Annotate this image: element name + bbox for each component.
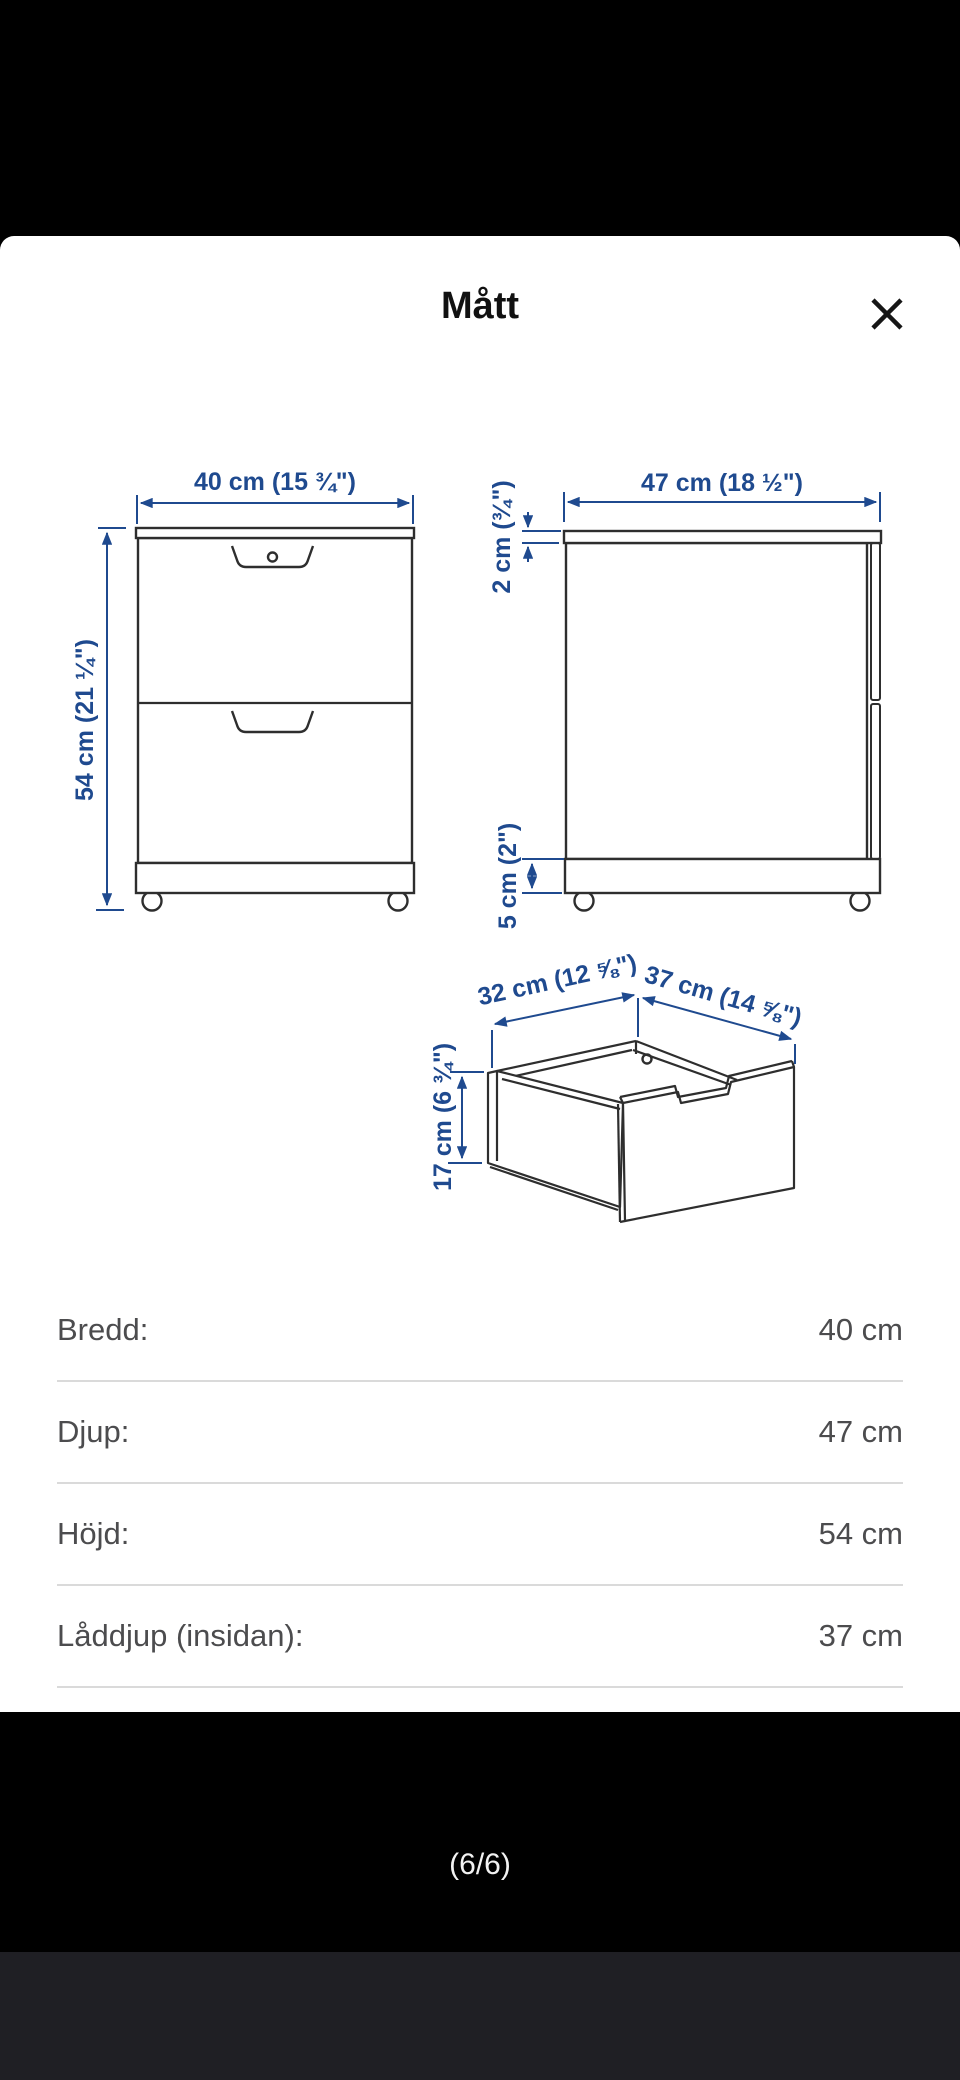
dimension-row-djup: Djup: 47 cm xyxy=(57,1382,903,1484)
side-view-diagram: 47 cm (18 ½") 2 cm (¾") 5 cm (2") xyxy=(460,460,900,930)
phone-screen: Mått 40 cm ( xyxy=(0,0,960,2080)
dimension-label: Höjd: xyxy=(57,1516,129,1552)
side-top-board xyxy=(564,531,881,543)
dimension-label: Bredd: xyxy=(57,1312,148,1348)
side-plinth xyxy=(565,859,880,893)
dimension-label: Låddjup (insidan): xyxy=(57,1618,303,1654)
side-plinth-label: 5 cm (2") xyxy=(494,823,522,929)
dimension-list: Bredd: 40 cm Djup: 47 cm Höjd: 54 cm Låd… xyxy=(57,1280,903,1688)
front-foot-right xyxy=(389,892,408,911)
sheet-title: Mått xyxy=(0,276,960,336)
front-body xyxy=(138,538,412,863)
front-top-board xyxy=(136,528,414,538)
drawer-view-diagram: 32 cm (12 ⅝") 37 cm (14 ⅝") 17 cm (6 ¾") xyxy=(420,940,820,1270)
side-body xyxy=(566,543,867,859)
front-width-label: 40 cm (15 ¾") xyxy=(194,468,356,496)
android-navigation-bar xyxy=(0,1952,960,2080)
close-button[interactable] xyxy=(859,286,915,342)
drawer-width-label: 32 cm (12 ⅝") xyxy=(475,949,639,1011)
dimension-value: 47 cm xyxy=(819,1414,903,1450)
side-drawer-front-top xyxy=(871,543,880,700)
dimension-value: 54 cm xyxy=(819,1516,903,1552)
front-plinth xyxy=(136,863,414,893)
measurements-bottom-sheet: Mått 40 cm ( xyxy=(0,236,960,1712)
dimension-value: 37 cm xyxy=(819,1618,903,1654)
drawer-depth-label: 37 cm (14 ⅝") xyxy=(642,961,805,1033)
dimension-label: Djup: xyxy=(57,1414,129,1450)
front-height-label: 54 cm (21 ¼") xyxy=(71,639,99,801)
drawer-height-label: 17 cm (6 ¾") xyxy=(429,1043,457,1191)
side-foot-left xyxy=(575,892,594,911)
side-depth-label: 47 cm (18 ½") xyxy=(641,469,803,497)
side-top-thickness-label: 2 cm (¾") xyxy=(488,480,516,593)
dimension-value: 40 cm xyxy=(819,1312,903,1348)
side-foot-right xyxy=(851,892,870,911)
dimension-row-laddjup: Låddjup (insidan): 37 cm xyxy=(57,1586,903,1688)
front-foot-left xyxy=(143,892,162,911)
dimension-row-hojd: Höjd: 54 cm xyxy=(57,1484,903,1586)
front-view-diagram: 40 cm (15 ¾") 54 cm (21 ¼") xyxy=(60,460,440,920)
front-cam-hole xyxy=(268,553,277,562)
side-drawer-front-bottom xyxy=(871,704,880,859)
close-icon xyxy=(867,294,907,334)
dimension-row-bredd: Bredd: 40 cm xyxy=(57,1280,903,1382)
sheet-header: Mått xyxy=(0,276,960,336)
image-pager-indicator: (6/6) xyxy=(0,1840,960,1890)
